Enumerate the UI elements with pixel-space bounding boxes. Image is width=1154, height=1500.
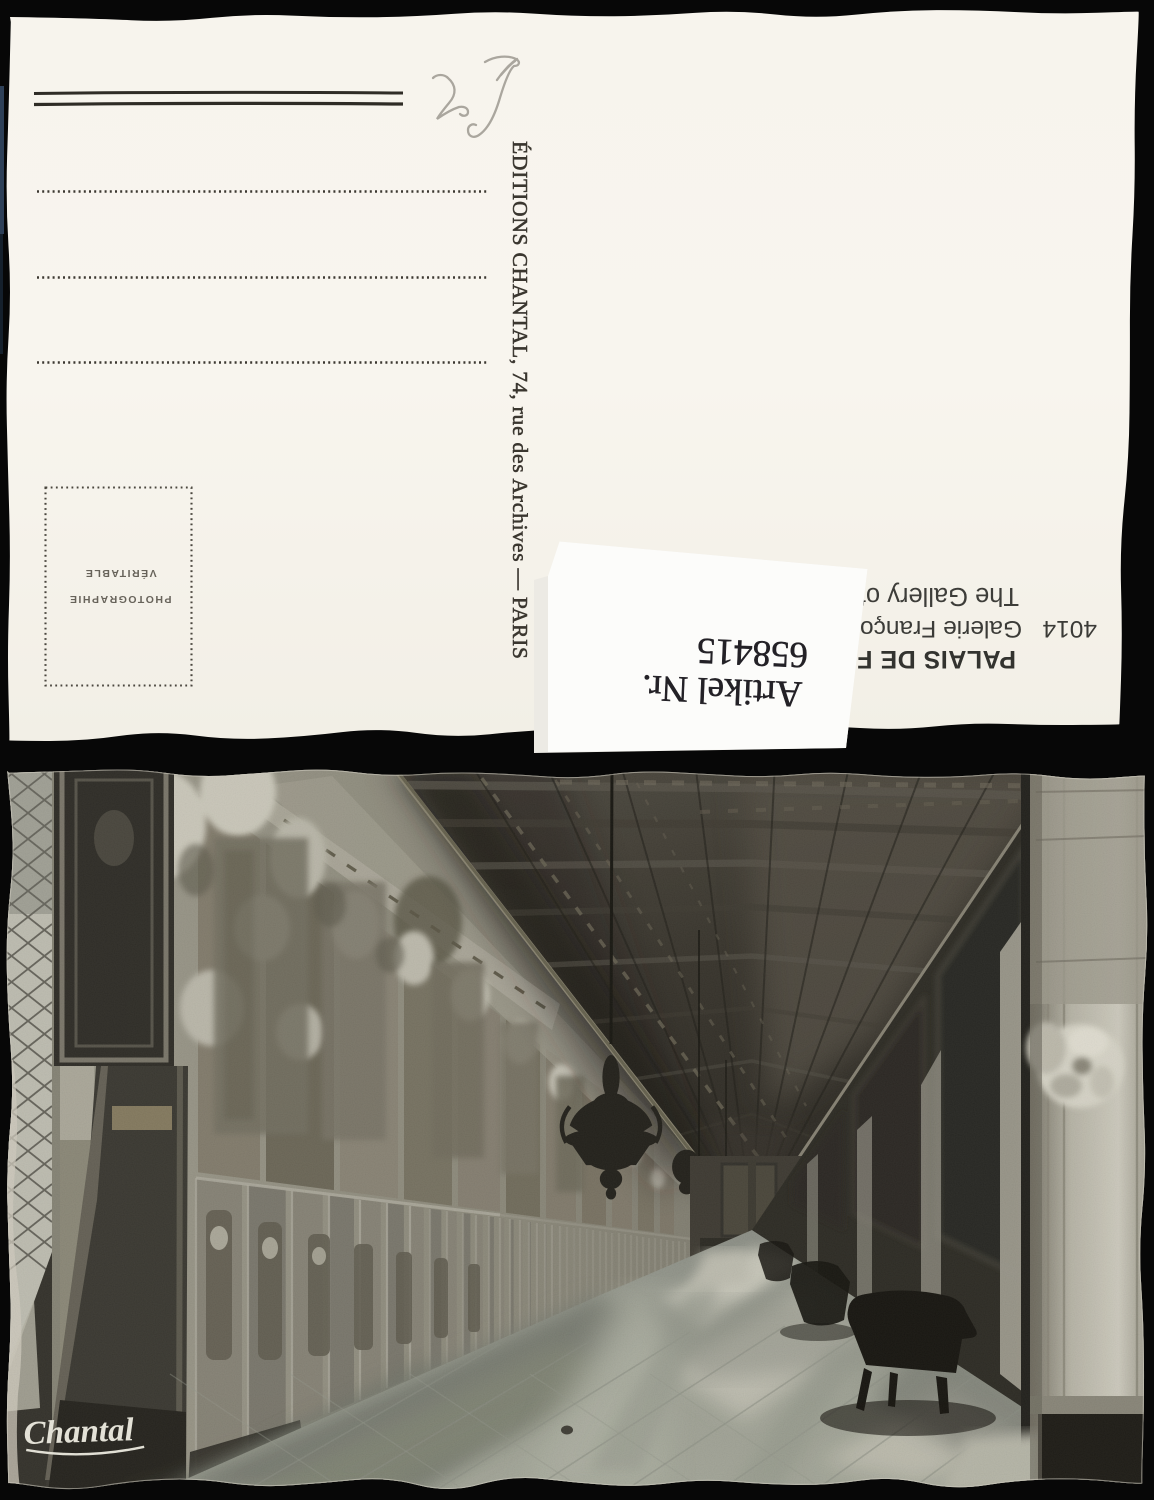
svg-text:PHOTOGRAPHIE: PHOTOGRAPHIE [69,593,172,605]
svg-text:Artikel Nr.: Artikel Nr. [641,667,803,715]
svg-text:VÉRITABLE: VÉRITABLE [84,567,156,580]
svg-text:658415: 658415 [696,630,809,676]
svg-text:ÉDITIONS CHANTAL, 74, rue des: ÉDITIONS CHANTAL, 74, rue des Archives —… [508,141,532,659]
